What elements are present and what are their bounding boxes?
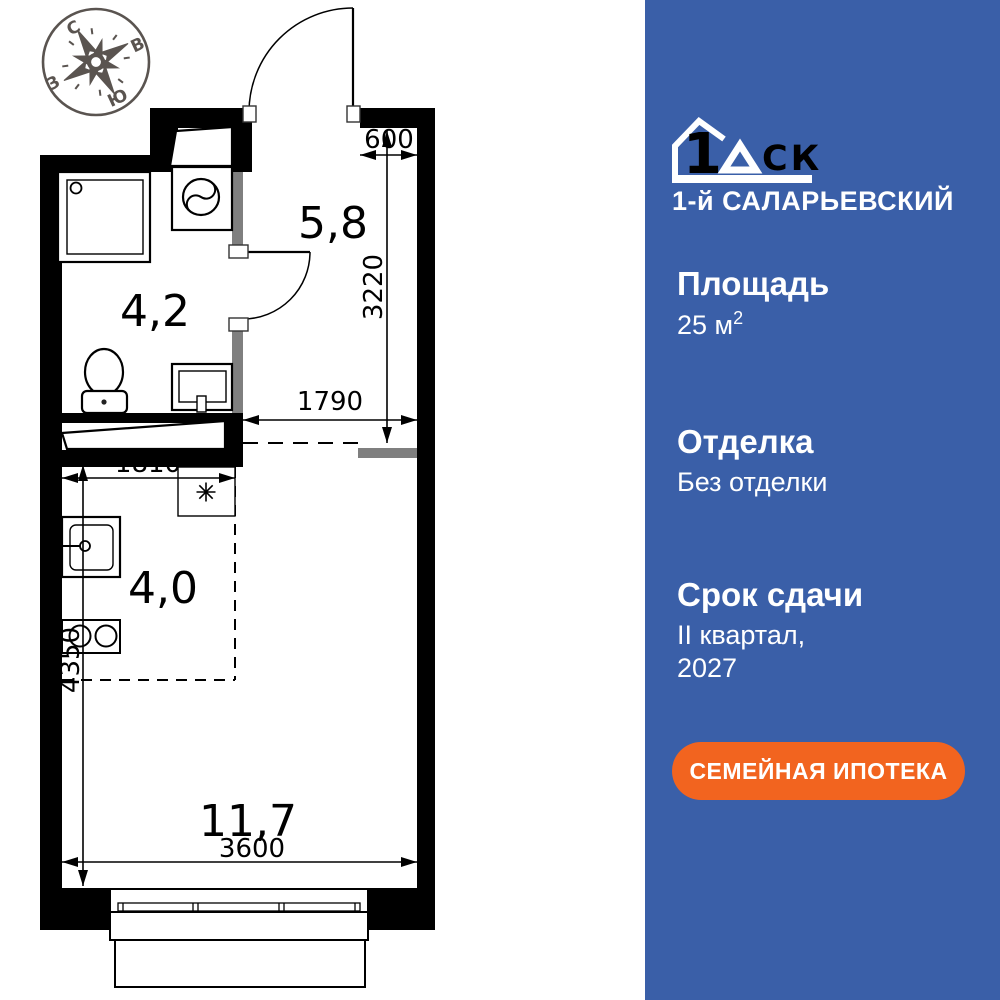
logo-letter-d-triangle: [724, 145, 756, 170]
bathroom-sink-icon: [172, 364, 232, 412]
entrance-door: [243, 8, 360, 122]
door-jamb: [229, 318, 248, 331]
closet-panel: [62, 421, 225, 449]
balcony-outline: [115, 940, 365, 987]
room-label-kitchen: 4,0: [128, 563, 198, 614]
vent-asterisk-icon: [197, 483, 216, 502]
room-label-living: 11,7: [199, 796, 297, 847]
project-name: 1-й САЛАРЬЕВСКИЙ: [672, 186, 954, 217]
partition-hall-living: [358, 448, 417, 458]
toilet-icon: [82, 349, 127, 413]
logo-number: 1: [683, 122, 722, 187]
door-jamb: [243, 106, 256, 122]
finish-label: Отделка: [677, 424, 827, 460]
wall-right: [417, 108, 435, 930]
info-panel: 1 СК 1-й САЛАРЬЕВСКИЙ Площадь 25 м2 Отде…: [645, 0, 1000, 1000]
developer-logo: 1 СК: [670, 112, 830, 187]
bathroom-door-swing-arc: [243, 252, 310, 319]
door-jamb: [229, 245, 248, 258]
finish-block: Отделка Без отделки: [677, 424, 827, 499]
logo-letters-sk: СК: [762, 139, 822, 179]
door-jamb: [347, 106, 360, 122]
family-mortgage-button[interactable]: СЕМЕЙНАЯ ИПОТЕКА: [672, 742, 965, 800]
shower-tray-icon: [58, 172, 150, 262]
wall-bottom-left: [40, 888, 110, 930]
compass-icon: С В З Ю: [43, 9, 149, 115]
compass-east-label: В: [128, 34, 148, 58]
vent-shaft: [178, 467, 235, 516]
entrance-door-swing-arc: [249, 8, 353, 112]
wall-bath-hall-lower: [232, 331, 243, 413]
wall-bottom-right: [368, 888, 435, 930]
dim-label-4350: 4350: [56, 627, 86, 693]
area-label: Площадь: [677, 266, 829, 302]
dim-label-1810: 1810: [115, 449, 181, 479]
dim-label-600: 600: [364, 125, 414, 155]
deadline-block: Срок сдачи II квартал, 2027: [677, 577, 863, 684]
washing-machine-icon: [172, 167, 232, 230]
entry-niche-panel: [170, 127, 232, 166]
dim-label-1790: 1790: [297, 387, 363, 417]
wall-bath-hall-upper: [232, 172, 243, 247]
deadline-value: II квартал, 2027: [677, 619, 863, 684]
window-balcony: [110, 889, 368, 987]
compass-west-label: З: [43, 72, 63, 95]
area-value: 25 м2: [677, 308, 829, 341]
wall-left: [40, 155, 62, 930]
deadline-label: Срок сдачи: [677, 577, 863, 613]
compass-star: [45, 11, 146, 112]
floor-plan: С В З Ю: [0, 0, 645, 1000]
room-label-bathroom: 4,2: [120, 286, 190, 337]
bathroom-door: [229, 245, 310, 331]
listing-card: С В З Ю: [0, 0, 1000, 1000]
window-icon: [110, 889, 368, 940]
compass-south-label: Ю: [105, 85, 132, 112]
kitchen-sink-icon: [58, 517, 120, 577]
room-label-hallway: 5,8: [298, 198, 368, 249]
dim-label-3220: 3220: [359, 254, 389, 320]
area-block: Площадь 25 м2: [677, 266, 829, 342]
finish-value: Без отделки: [677, 466, 827, 498]
